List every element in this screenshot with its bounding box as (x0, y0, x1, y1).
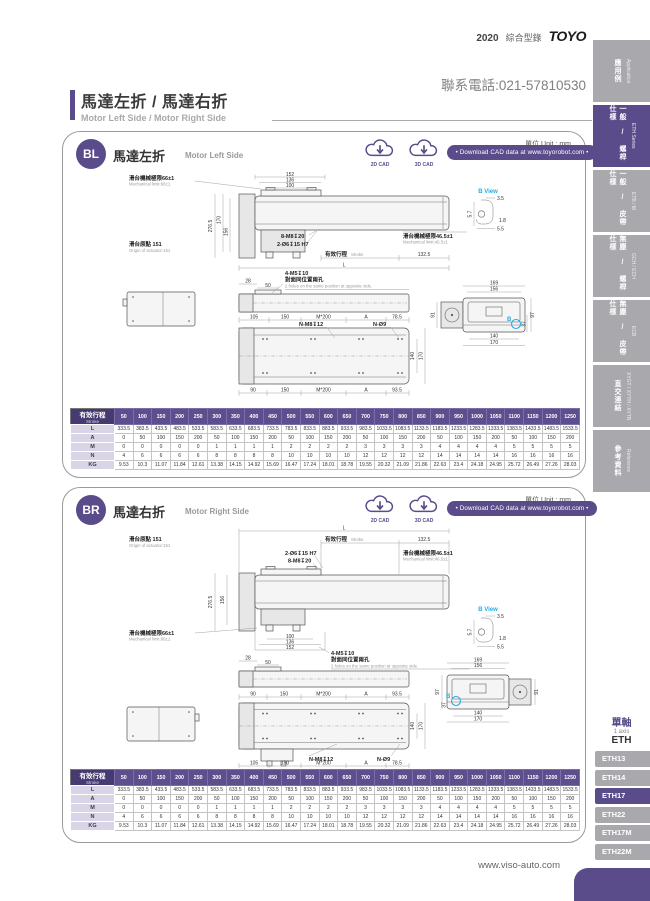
data-cell: 14.15 (226, 822, 245, 831)
stroke-col-header: 450 (263, 770, 282, 786)
stroke-label: 有效行程 (325, 535, 348, 543)
data-cell: 50 (207, 434, 226, 443)
stroke-col-header: 1150 (524, 409, 543, 425)
data-cell: 50 (133, 795, 152, 804)
data-cell: 200 (486, 434, 505, 443)
data-cell: 3 (393, 443, 412, 452)
cloud-download-icon (407, 137, 441, 159)
hole-callout: 2-Ø6↧15 H7 (277, 241, 309, 248)
dim-label: 5.7 (468, 628, 474, 635)
data-cell: 0 (133, 443, 152, 452)
stroke-col-header: 450 (263, 409, 282, 425)
cad-3d[interactable]: 3D CAD (405, 493, 443, 524)
data-cell: 1233.5 (449, 786, 468, 795)
thread-callout: 4-M5↧10 (331, 650, 354, 657)
data-cell: 100 (152, 795, 171, 804)
data-cell: 5 (524, 443, 543, 452)
br-end-view: 169 156 B 91 97 37 140 170 (435, 658, 540, 723)
data-cell: 8 (207, 813, 226, 822)
dim-label: 150 (281, 315, 290, 321)
dim-label: 5.7 (468, 210, 474, 217)
data-cell: 0 (133, 804, 152, 813)
stroke-col-header: 350 (226, 409, 245, 425)
data-cell: 1 (263, 443, 282, 452)
stroke-col-header: 100 (133, 409, 152, 425)
data-cell: 17.24 (300, 461, 319, 470)
data-cell: 16 (524, 452, 543, 461)
data-cell: 10 (282, 813, 301, 822)
sidebar-tab-ecb[interactable]: 無塵 / 皮帶仕樣 ECB (593, 300, 650, 362)
data-cell: 8 (207, 452, 226, 461)
b-view-marker: B (446, 694, 451, 700)
dim-label: A (364, 388, 368, 394)
data-cell: 8 (263, 813, 282, 822)
data-cell: 5 (561, 443, 580, 452)
data-cell: 28.03 (561, 822, 580, 831)
dim-label: 276.5 (208, 220, 214, 233)
data-cell: 8 (226, 452, 245, 461)
catalog-year: 2020 (476, 33, 498, 44)
stroke-col-header: 200 (170, 409, 189, 425)
cad-2d[interactable]: 2D CAD (361, 493, 399, 524)
data-cell: 23.4 (449, 461, 468, 470)
br-top-strip-view: 28 50 對面同位置兩孔 2 holes on the same positi… (239, 656, 469, 688)
mech-limit-label-en: Mechanical limit:46.5±1 (403, 557, 448, 562)
download-cad-button[interactable]: • Download CAD data at www.toyorobot.com… (447, 145, 597, 160)
data-cell: 0 (189, 443, 208, 452)
data-cell: 4 (431, 443, 450, 452)
data-cell: 10.3 (133, 822, 152, 831)
sidebar-tab-application[interactable]: 應用例 Application (593, 40, 650, 102)
data-cell: 200 (338, 434, 357, 443)
stroke-col-header: 500 (282, 409, 301, 425)
table-row: L333.5383.5433.5483.5533.5583.5633.5683.… (71, 786, 580, 795)
table-row: KG9.5310.311.0711.8412.6113.3814.1514.92… (71, 461, 580, 470)
sidebar-tab-eth-series[interactable]: 一般 / 螺桿仕樣 ETH Series (593, 105, 650, 167)
data-cell: 4 (486, 804, 505, 813)
toyo-logo: TOYO (549, 28, 586, 44)
data-cell: 533.5 (189, 425, 208, 434)
data-cell: 383.5 (133, 425, 152, 434)
tab-label-en: Application (625, 59, 631, 83)
data-cell: 3 (412, 443, 431, 452)
bl-motor-side-view (123, 292, 195, 326)
cad-3d-label: 3D CAD (405, 162, 443, 168)
dim-label: 28 (245, 279, 251, 285)
dim-label: 1.8 (499, 218, 506, 224)
data-cell: 4 (449, 804, 468, 813)
model-button-eth13[interactable]: ETH13 (595, 751, 650, 767)
row-label: N (71, 813, 115, 822)
stroke-col-header: 1100 (505, 409, 524, 425)
data-cell: 14 (486, 452, 505, 461)
stroke-header-zh: 有效行程 (71, 770, 114, 780)
opposite-holes-label: 對面同位置兩孔 (331, 656, 370, 664)
data-cell: 11.84 (170, 461, 189, 470)
data-cell: 8 (263, 452, 282, 461)
data-cell: 14 (486, 813, 505, 822)
stroke-col-header: 550 (300, 409, 319, 425)
page-title: 馬達左折 / 馬達右折 (81, 88, 228, 112)
data-cell: 8 (245, 813, 264, 822)
data-cell: 12 (412, 452, 431, 461)
data-cell: 433.5 (152, 786, 171, 795)
bl-top-strip-view: 28 50 4-M5↧10 對面同位置兩孔 2 holes on the sam… (239, 270, 409, 312)
dim-label: 170 (419, 722, 425, 731)
header-divider (272, 120, 592, 121)
data-cell: 50 (356, 434, 375, 443)
dim-label: 90 (250, 388, 256, 394)
dim-label: 150 (281, 761, 290, 767)
bl-main-side-view: 152 136 100 滑台機械極限66±1 Mechanical limit:… (129, 172, 467, 271)
table-row: L333.5383.5433.5483.5533.5583.5633.5683.… (71, 425, 580, 434)
data-cell: 4 (449, 443, 468, 452)
br-motor-side-view (127, 707, 199, 741)
data-cell: 383.5 (133, 786, 152, 795)
data-cell: 10 (319, 452, 338, 461)
data-cell: 21.09 (393, 461, 412, 470)
data-cell: 1083.5 (393, 425, 412, 434)
dim-label: 97 (530, 312, 536, 318)
model-button-eth22m[interactable]: ETH22M (595, 844, 650, 860)
data-cell: 783.5 (282, 786, 301, 795)
table-row: N466668888101010101212121214141414161616… (71, 452, 580, 461)
br-stroke-table-wrap: 有效行程Stroke501001502002503003504004505005… (70, 769, 580, 831)
dim-label: 28 (245, 656, 251, 662)
data-cell: 733.5 (263, 425, 282, 434)
data-cell: 8 (245, 452, 264, 461)
data-cell: 833.5 (300, 786, 319, 795)
data-cell: 1 (245, 804, 264, 813)
data-cell: 150 (245, 795, 264, 804)
data-cell: 4 (115, 813, 134, 822)
stroke-label-en: Stroke (351, 537, 364, 542)
dim-label: 3.5 (497, 614, 504, 620)
cloud-download-icon (363, 493, 397, 515)
row-label: A (71, 795, 115, 804)
data-cell: 17.24 (300, 822, 319, 831)
tab-label-zh: 一般 / 螺桿仕樣 (607, 105, 627, 167)
bl-stroke-table: 有效行程Stroke501001502002503003504004505005… (70, 408, 580, 470)
data-cell: 1 (226, 443, 245, 452)
row-label: KG (71, 461, 115, 470)
data-cell: 1383.5 (505, 425, 524, 434)
data-cell: 10 (338, 452, 357, 461)
data-cell: 3 (412, 804, 431, 813)
data-cell: 783.5 (282, 425, 301, 434)
catalog-name: 綜合型錄 (506, 31, 542, 44)
stroke-col-header: 1050 (486, 770, 505, 786)
bl-stroke-table-wrap: 有效行程Stroke501001502002503003504004505005… (70, 408, 580, 470)
download-cad-button[interactable]: • Download CAD data at www.toyorobot.com… (447, 501, 597, 516)
br-b-view-detail: B View 3.5 5.7 1.8 5.5 (468, 607, 507, 651)
data-cell: 3 (375, 443, 394, 452)
data-cell: 1283.5 (468, 425, 487, 434)
b-view-title: B View (478, 607, 498, 613)
dim-label: 5.5 (497, 227, 504, 233)
dim-label: 3.5 (497, 196, 504, 202)
stroke-col-header: 700 (356, 409, 375, 425)
data-cell: 50 (431, 434, 450, 443)
tab-label-en: Reference (625, 449, 631, 472)
data-cell: 150 (542, 434, 561, 443)
data-cell: 2 (319, 804, 338, 813)
data-cell: 683.5 (245, 425, 264, 434)
table-header-row: 有效行程Stroke501001502002503003504004505005… (71, 409, 580, 425)
data-cell: 1333.5 (486, 786, 505, 795)
cad-3d[interactable]: 3D CAD (405, 137, 443, 168)
stroke-col-header: 900 (431, 770, 450, 786)
website-url: www.viso-auto.com (478, 860, 560, 871)
data-cell: 4 (431, 804, 450, 813)
table-row: A050100150200501001502005010015020050100… (71, 795, 580, 804)
unit-label: 單位 Unit : mm (525, 495, 571, 505)
data-cell: 22.63 (431, 822, 450, 831)
tab-label-en: GCH / ECH (630, 253, 636, 279)
data-cell: 150 (319, 795, 338, 804)
data-cell: 50 (431, 795, 450, 804)
data-cell: 18.01 (319, 822, 338, 831)
data-cell: 2 (338, 443, 357, 452)
data-cell: 1033.5 (375, 425, 394, 434)
data-cell: 1433.5 (524, 425, 543, 434)
dim-label: 37 (442, 702, 448, 708)
page-subtitle: Motor Left Side / Motor Right Side (81, 113, 228, 123)
data-cell: 1383.5 (505, 786, 524, 795)
bl-end-view: B 169 156 91 97 37 140 170 (431, 281, 537, 347)
stroke-col-header: 250 (189, 770, 208, 786)
eth-model-menu: 單軸 1 axis ETH ETH13 ETH14 ETH17 ETH22 ET… (593, 714, 650, 862)
stroke-col-header: 600 (319, 770, 338, 786)
data-cell: 50 (356, 795, 375, 804)
data-cell: 983.5 (356, 425, 375, 434)
stroke-col-header: 400 (245, 409, 264, 425)
data-cell: 20.32 (375, 461, 394, 470)
data-cell: 633.5 (226, 425, 245, 434)
data-cell: 10 (300, 813, 319, 822)
title-accent-bar (70, 90, 75, 120)
data-cell: 12 (375, 813, 394, 822)
stroke-col-header: 700 (356, 770, 375, 786)
data-cell: 5 (542, 443, 561, 452)
data-cell: 1283.5 (468, 786, 487, 795)
data-cell: 13.38 (207, 461, 226, 470)
data-cell: 5 (524, 804, 543, 813)
dim-label: 170 (490, 340, 499, 346)
row-label: L (71, 425, 115, 434)
tab-label-zh: 無塵 / 皮帶仕樣 (607, 300, 627, 362)
stroke-col-header: 950 (449, 770, 468, 786)
data-cell: 1 (245, 443, 264, 452)
cad-2d[interactable]: 2D CAD (361, 137, 399, 168)
row-label: N (71, 452, 115, 461)
data-cell: 50 (505, 434, 524, 443)
data-cell: 5 (505, 804, 524, 813)
stroke-col-header: 800 (393, 409, 412, 425)
data-cell: 5 (542, 804, 561, 813)
cad-2d-label: 2D CAD (361, 162, 399, 168)
hole-callout: N-Ø9 (373, 322, 386, 328)
origin-label-en: Origin of actuator:151 (129, 248, 171, 253)
data-cell: 14 (449, 813, 468, 822)
dim-label: A (364, 761, 368, 767)
data-cell: 683.5 (245, 786, 264, 795)
dim-label: 156 (490, 287, 499, 293)
dim-label: M*200 (316, 761, 331, 767)
data-cell: 200 (263, 434, 282, 443)
dim-label: 1.8 (499, 636, 506, 642)
data-cell: 0 (152, 804, 171, 813)
tab-label-zh: 直交連結 (612, 380, 622, 412)
data-cell: 150 (468, 795, 487, 804)
data-cell: 1533.5 (561, 425, 580, 434)
dim-label: L (343, 526, 346, 532)
stroke-col-header: 850 (412, 409, 431, 425)
bl-plan-view: 105 150 M*200 A 78.5 N-M8↧12 N-Ø9 140 (239, 315, 425, 397)
dim-label: 156 (474, 663, 483, 669)
sidebar-tab-xy-series[interactable]: 直交連結 XYGT / XYTH / XYTB (593, 365, 650, 427)
cad-3d-label: 3D CAD (405, 518, 443, 524)
data-cell: 150 (468, 434, 487, 443)
mech-limit-label-en: Mechanical limit:46.5±1 (403, 240, 448, 245)
model-button-eth17[interactable]: ETH17 (595, 788, 650, 804)
tab-label-en: ECB (630, 326, 636, 336)
data-cell: 0 (170, 804, 189, 813)
tab-label-en: ETH Series (630, 123, 636, 149)
dim-label: 91 (431, 312, 437, 318)
model-button-eth17m[interactable]: ETH17M (595, 825, 650, 841)
stroke-col-header: 950 (449, 409, 468, 425)
data-cell: 583.5 (207, 786, 226, 795)
data-cell: 150 (170, 795, 189, 804)
data-cell: 3 (356, 443, 375, 452)
data-cell: 200 (338, 795, 357, 804)
sidebar-tab-reference[interactable]: 參考資料 Reference (593, 430, 650, 492)
data-cell: 150 (319, 434, 338, 443)
stroke-col-header: 1100 (505, 770, 524, 786)
dim-label: A (364, 692, 368, 698)
data-cell: 4 (486, 443, 505, 452)
stroke-col-header: 300 (207, 770, 226, 786)
model-button-eth14[interactable]: ETH14 (595, 770, 650, 786)
data-cell: 0 (115, 443, 134, 452)
data-cell: 100 (375, 434, 394, 443)
data-cell: 1483.5 (542, 425, 561, 434)
data-cell: 12 (356, 452, 375, 461)
dim-label: L (343, 263, 346, 269)
data-cell: 6 (170, 813, 189, 822)
row-label: KG (71, 822, 115, 831)
opposite-holes-label: 對面同位置兩孔 (285, 276, 324, 284)
stroke-header-en: Stroke (71, 780, 114, 785)
data-cell: 11.07 (152, 822, 171, 831)
data-cell: 27.26 (542, 822, 561, 831)
sidebar-tab-gch-ech[interactable]: 無塵 / 螺桿仕樣 GCH / ECH (593, 235, 650, 297)
br-section-title: 馬達右折 (113, 502, 165, 521)
row-label: A (71, 434, 115, 443)
data-cell: 0 (115, 795, 134, 804)
stroke-header-cell: 有效行程Stroke (71, 770, 115, 786)
data-cell: 15.69 (263, 822, 282, 831)
data-cell: 5 (561, 804, 580, 813)
stroke-header-cell: 有效行程Stroke (71, 409, 115, 425)
data-cell: 18.78 (338, 822, 357, 831)
data-cell: 6 (189, 452, 208, 461)
br-badge: BR (76, 495, 106, 525)
data-cell: 14 (449, 452, 468, 461)
dim-label: M*200 (316, 388, 331, 394)
dim-label: 37 (522, 321, 528, 327)
cloud-download-icon (407, 493, 441, 515)
dim-label: 170 (419, 352, 425, 361)
data-cell: 0 (115, 804, 134, 813)
data-cell: 1133.5 (412, 786, 431, 795)
data-cell: 100 (226, 434, 245, 443)
stroke-col-header: 550 (300, 770, 319, 786)
opposite-holes-label-en: 2 holes on the same position at opposite… (285, 284, 372, 289)
data-cell: 833.5 (300, 425, 319, 434)
dim-label: 105 (250, 315, 259, 321)
data-cell: 10 (338, 813, 357, 822)
data-cell: 14 (468, 813, 487, 822)
dim-label: 93.5 (392, 692, 402, 698)
data-cell: 27.26 (542, 461, 561, 470)
data-cell: 50 (505, 795, 524, 804)
data-cell: 333.5 (115, 425, 134, 434)
bl-section-subtitle: Motor Left Side (185, 151, 243, 160)
data-cell: 6 (133, 813, 152, 822)
dim-label: 140 (410, 352, 416, 361)
data-cell: 100 (524, 795, 543, 804)
data-cell: 14 (431, 813, 450, 822)
panel-motor-right-side: BR 馬達右折 Motor Right Side 2D CAD 3D CAD •… (62, 487, 586, 843)
dim-label: 140 (410, 722, 416, 731)
data-cell: 933.5 (338, 786, 357, 795)
data-cell: 15.69 (263, 461, 282, 470)
thread-callout: N-M8↧12 (299, 321, 323, 328)
hole-callout: 2-Ø6↧15 H7 (285, 550, 317, 557)
data-cell: 50 (133, 434, 152, 443)
data-cell: 20.32 (375, 822, 394, 831)
data-cell: 25.72 (505, 461, 524, 470)
data-cell: 200 (412, 434, 431, 443)
data-cell: 0 (115, 434, 134, 443)
stroke-label: 有效行程 (325, 250, 348, 258)
model-button-eth22[interactable]: ETH22 (595, 807, 650, 823)
stroke-col-header: 1000 (468, 770, 487, 786)
data-cell: 8 (226, 813, 245, 822)
data-cell: 14.92 (245, 822, 264, 831)
catalog-brand-line: 2020 綜合型錄 TOYO (476, 28, 586, 44)
data-cell: 583.5 (207, 425, 226, 434)
data-cell: 1433.5 (524, 786, 543, 795)
data-cell: 12 (375, 452, 394, 461)
data-cell: 11.84 (170, 822, 189, 831)
dim-label: 105 (250, 761, 259, 767)
stroke-col-header: 1250 (561, 409, 580, 425)
stroke-col-header: 250 (189, 409, 208, 425)
data-cell: 16.47 (282, 461, 301, 470)
data-cell: 533.5 (189, 786, 208, 795)
data-cell: 23.4 (449, 822, 468, 831)
data-cell: 100 (300, 434, 319, 443)
data-cell: 2 (319, 443, 338, 452)
data-cell: 3 (393, 804, 412, 813)
sidebar-tab-etb-m[interactable]: 一般 / 皮帶仕樣 ETB / M (593, 170, 650, 232)
mech-limit-label-en: Mechanical limit:66±1 (129, 637, 171, 642)
stroke-col-header: 400 (245, 770, 264, 786)
thread-callout: 4-M5↧10 (285, 270, 308, 277)
